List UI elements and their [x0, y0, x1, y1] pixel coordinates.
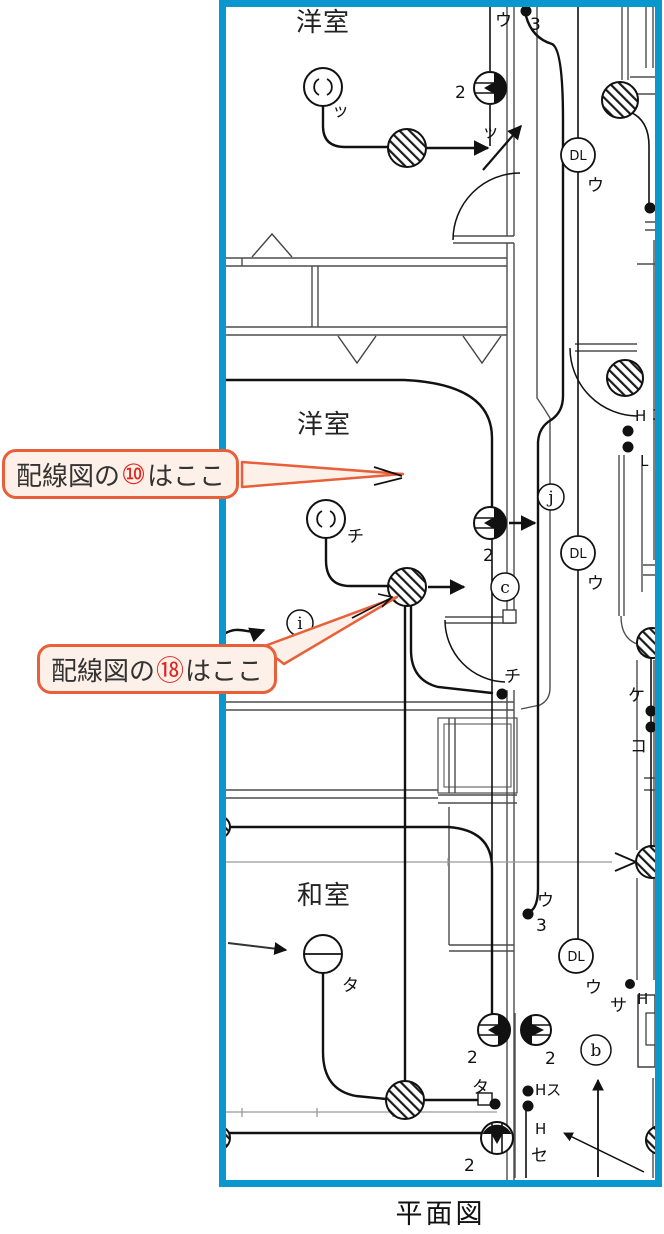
label-dl-bottom: ウ	[585, 978, 602, 998]
label-outlet-pair-right-count: 2	[545, 1049, 556, 1069]
label-light-ta: タ	[342, 976, 359, 996]
arrow-to-circuit-i	[224, 630, 264, 634]
arrow-to-ta-light	[228, 943, 286, 950]
outlet-pair-right	[521, 1015, 551, 1045]
outlet-pair-left	[478, 1014, 510, 1046]
callout-eighteen-tail	[262, 597, 397, 664]
switch-dot	[523, 909, 534, 920]
junction-box	[386, 1081, 424, 1119]
label-sw-chi: チ	[504, 667, 521, 687]
label-door-top-switch: ッ	[482, 122, 499, 142]
downlight-label: DL	[569, 547, 587, 562]
junction-box	[206, 1126, 230, 1150]
closet-inner-line	[444, 724, 511, 787]
room-label-middle: 洋室	[297, 410, 351, 440]
label-outlet-pair-left-count: 2	[467, 1048, 478, 1068]
label-outlet-bottom-count: 2	[464, 1156, 475, 1176]
circuit-b-label: b	[591, 1041, 602, 1061]
label-outlet-top-count: 2	[455, 83, 466, 103]
label-right-l: L	[640, 452, 649, 470]
junction-box	[388, 129, 426, 167]
label-dl-top: ウ	[587, 176, 604, 196]
outlet-top	[474, 72, 506, 104]
label-dl-mid: ウ	[587, 574, 604, 594]
callout-eighteen-suffix: はここ	[185, 651, 263, 688]
label-sw-ta: タ	[472, 1078, 489, 1098]
switch-dot	[623, 442, 634, 453]
label-sw-bottom-ways: 3	[536, 916, 547, 936]
floor-plan-figure: DL DL DL j c i b 洋室 洋室 和室 ッ 2 ウ 3 ッ	[0, 0, 664, 1234]
label-right-ke: ケ	[628, 686, 645, 706]
outlet-mid	[474, 507, 506, 539]
label-outlet-mid-count: 2	[483, 546, 494, 566]
downlights: DL DL DL	[559, 138, 595, 973]
ceiling-rose-mid	[307, 500, 345, 538]
callout-ten-number: ⑩	[121, 458, 146, 491]
label-dl-bottom-sa: サ	[610, 996, 627, 1016]
label-sw-top-ways: 3	[530, 15, 541, 35]
room-label-bottom: 和室	[297, 881, 351, 911]
callout-ten-suffix: はここ	[147, 456, 225, 493]
callout-eighteen-prefix: 配線図の	[51, 651, 155, 688]
junction-box	[602, 82, 638, 118]
switch-dot	[490, 1099, 501, 1110]
label-sw-top: ウ	[495, 11, 512, 31]
switch-dot	[646, 722, 657, 733]
gray-guide-lines	[226, 858, 612, 1117]
callout-wiring-diagram-18: 配線図の⑱はここ	[37, 644, 277, 694]
switch-dot	[523, 1086, 534, 1097]
window-symbols	[252, 234, 501, 363]
circuit-j-label: j	[546, 488, 553, 508]
callout-eighteen-number: ⑱	[156, 649, 184, 689]
outlet-bottom	[481, 1122, 513, 1154]
room-label-top: 洋室	[296, 8, 350, 38]
door-jamb	[503, 610, 516, 623]
label-rose-top: ッ	[332, 101, 349, 121]
closet-outline	[438, 718, 517, 793]
ceiling-light-ta	[304, 935, 342, 973]
callout-ten-prefix: 配線図の	[16, 456, 120, 493]
switch-dot	[623, 426, 634, 437]
label-sw-bottom: ウ	[537, 891, 554, 911]
label-sw-se: セ	[531, 1146, 548, 1166]
switch-dot	[645, 203, 656, 214]
downlight-label: DL	[567, 950, 585, 965]
label-right-ko: コ	[630, 737, 647, 757]
equipment-box-inner	[646, 1013, 655, 1045]
chevron-arrow-corridor	[615, 853, 636, 871]
figure-caption: 平面図	[219, 1192, 662, 1231]
label-rose-mid: チ	[347, 527, 364, 547]
downlight-label: DL	[569, 149, 587, 164]
label-right-h-mid: H	[637, 990, 648, 1008]
switch-dot	[523, 1101, 534, 1112]
circuit-c-label: c	[500, 578, 510, 598]
switch-dot	[646, 706, 657, 717]
switch-dot	[497, 689, 508, 700]
label-sw-h: H	[535, 1120, 546, 1138]
label-sw-hs: Hス	[535, 1081, 561, 1099]
switch-dot	[625, 979, 635, 989]
arrow-to-h-switch	[564, 1133, 644, 1172]
label-right-h-top: H	[635, 407, 646, 425]
callout-wiring-diagram-10: 配線図の⑩はここ	[2, 449, 239, 499]
junction-box	[607, 360, 643, 396]
plan-drawing: DL DL DL j c i b 洋室 洋室 和室 ッ 2 ウ 3 ッ	[206, 6, 664, 1181]
